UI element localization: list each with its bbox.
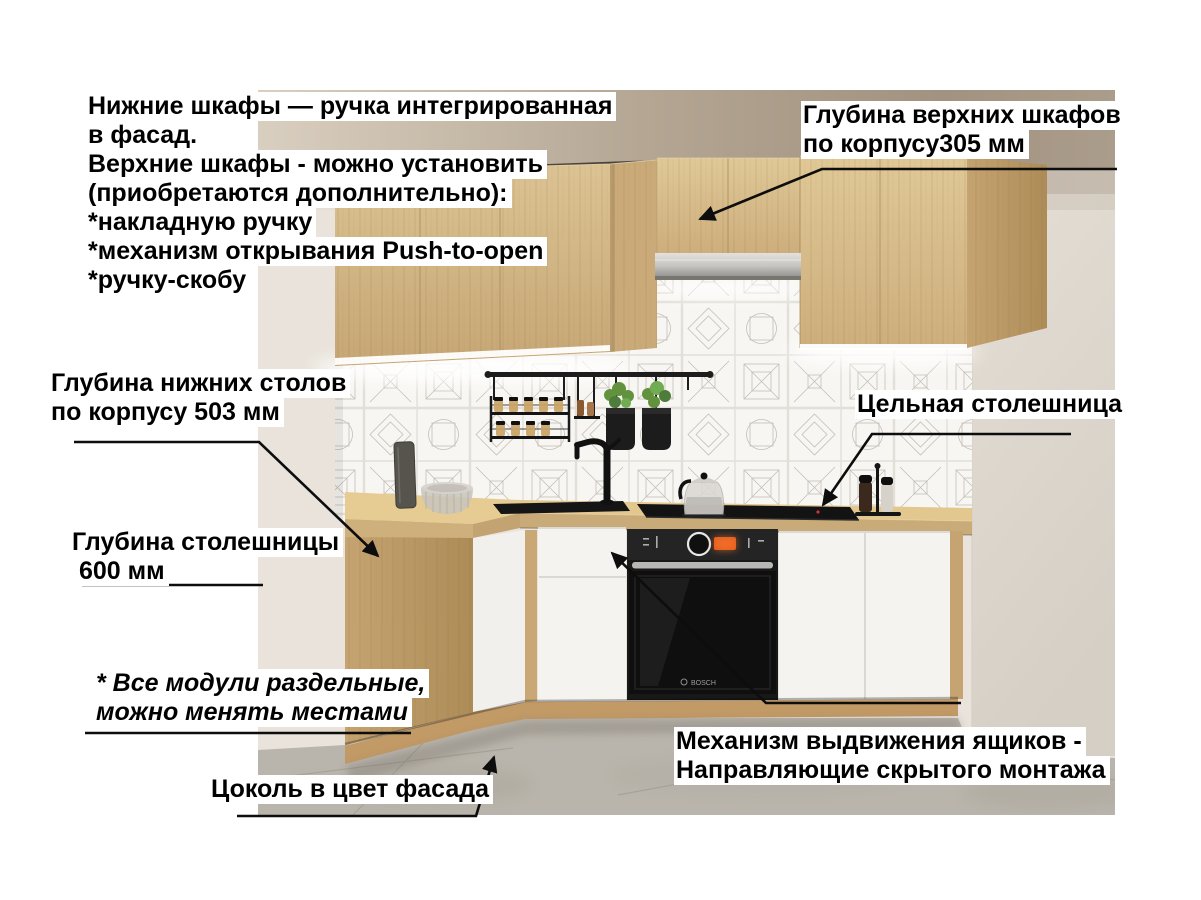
- label-line: * Все модули раздельные,: [94, 669, 429, 698]
- label-line: Цоколь в цвет фасада: [209, 775, 493, 804]
- label-drawer-mechanism: Механизм выдвижения ящиков - Направляющи…: [674, 727, 1110, 785]
- label-line: Глубина нижних столов: [49, 369, 350, 398]
- label-line: Направляющие скрытого монтажа: [674, 756, 1110, 785]
- label-plinth-note: Цоколь в цвет фасада: [209, 775, 493, 804]
- label-solid-countertop: Цельная столешница: [855, 390, 1126, 419]
- label-line: по корпусу 503 мм: [49, 398, 284, 427]
- label-line: Глубина верхних шкафов: [801, 101, 1125, 130]
- label-lower-cabinet-depth: Глубина нижних столов по корпусу 503 мм: [49, 369, 350, 427]
- label-line: *накладную ручку: [86, 208, 316, 237]
- label-countertop-depth: Глубина столешницы 600 мм: [70, 528, 343, 586]
- label-line: (приобретаются дополнительно):: [86, 179, 512, 208]
- label-line: в фасад.: [86, 121, 201, 150]
- label-line: Механизм выдвижения ящиков -: [674, 727, 1086, 756]
- cooker-hood: [655, 253, 801, 280]
- label-line: Верхние шкафы - можно установить: [86, 150, 547, 179]
- label-upper-cabinet-depth: Глубина верхних шкафов по корпусу305 мм: [801, 101, 1125, 159]
- label-line: 600 мм: [70, 557, 169, 586]
- label-line: Нижние шкафы — ручка интегрированная: [86, 92, 616, 121]
- label-line: Цельная столешница: [855, 390, 1126, 419]
- label-modules-note: * Все модули раздельные, можно менять ме…: [94, 669, 429, 727]
- label-line: Глубина столешницы: [70, 528, 343, 557]
- label-line: по корпусу305 мм: [801, 130, 1029, 159]
- annotated-kitchen-image: BOSCH: [0, 0, 1201, 900]
- label-line: *механизм открывания Push-to-open: [86, 237, 547, 266]
- label-line: *ручку-скобу: [86, 266, 250, 295]
- oven-brand: BOSCH: [691, 680, 716, 687]
- label-handles-note: Нижние шкафы — ручка интегрированная в ф…: [86, 92, 616, 295]
- label-line: можно менять местами: [94, 698, 412, 727]
- cutting-board: [394, 442, 416, 509]
- oven: BOSCH: [627, 529, 778, 700]
